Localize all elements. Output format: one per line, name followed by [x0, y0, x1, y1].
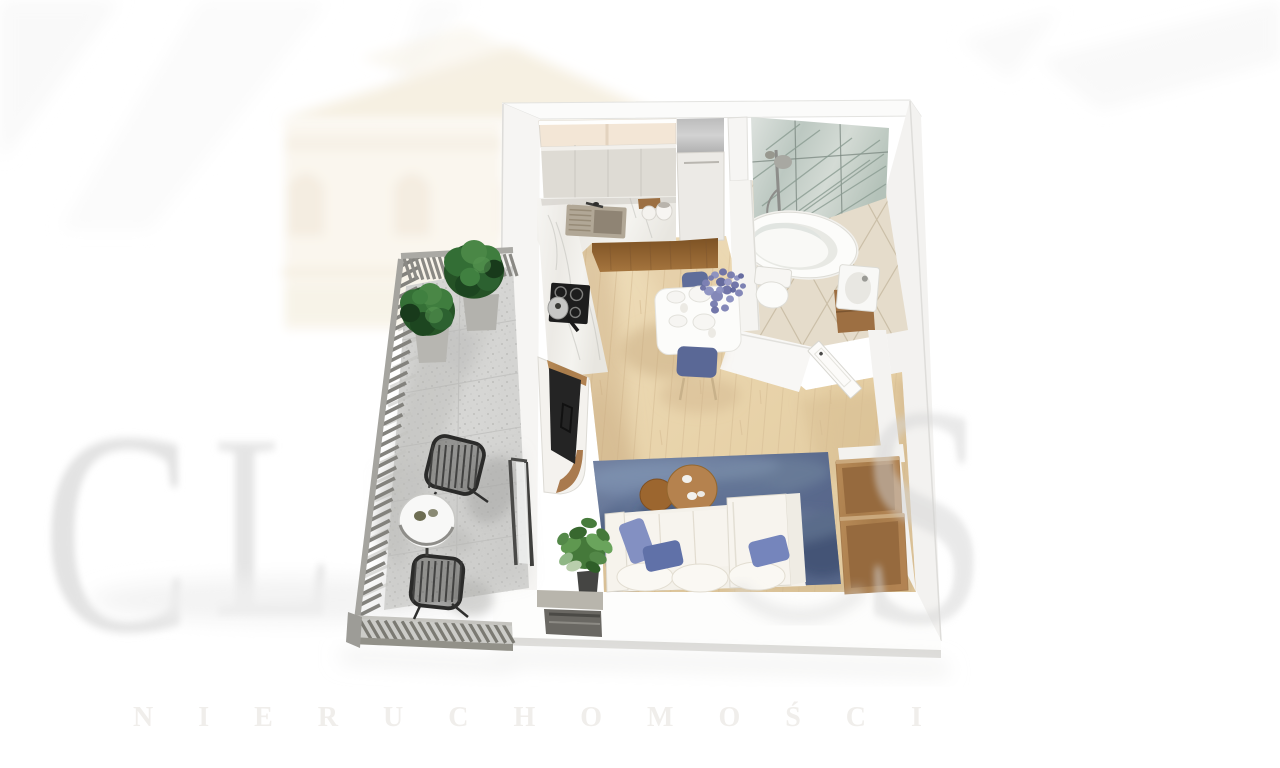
svg-text:S: S	[858, 341, 988, 691]
svg-text:L: L	[212, 381, 337, 671]
svg-text:NIERUCHOMOŚCI: NIERUCHOMOŚCI	[133, 702, 967, 733]
svg-text:C: C	[42, 372, 193, 693]
